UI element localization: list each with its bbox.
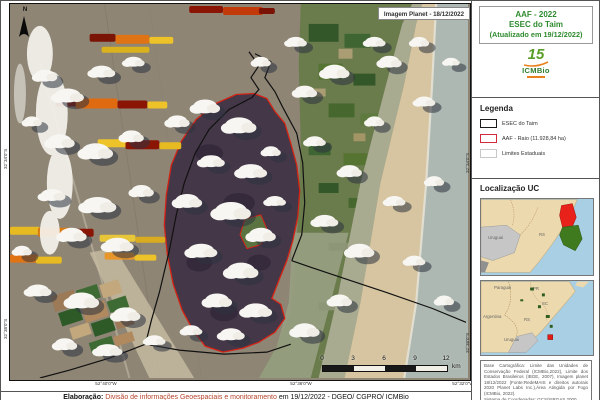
inset2-uruguai-label: Uruguai — [504, 337, 519, 342]
location-inset-rs: Uruguai RS — [480, 198, 594, 276]
scale-tick: 9 — [413, 355, 417, 362]
latitude-label: 32°38'0"S — [3, 319, 8, 339]
map-title: AAF - 2022 ESEC do Taim (Atualizado em 1… — [479, 6, 593, 44]
credits-text: Base Cartográfica: Limite das Unidades d… — [484, 363, 588, 397]
satellite-map-canvas: N Imagem Planet - 18/12/2022 0 3 6 9 12 … — [9, 3, 471, 381]
elaboration-credit: Elaboração: Divisão de informações Geoes… — [1, 391, 471, 400]
icmbio-logo: 15 ICMBio — [472, 47, 600, 78]
image-source-label: Imagem Planet - 18/12/2022 — [378, 7, 470, 20]
legend-item-label: AAF - Raio (11.928,84 ha) — [502, 136, 566, 142]
map-layout-page: N Imagem Planet - 18/12/2022 0 3 6 9 12 … — [0, 0, 600, 400]
legend-item-label: Limites Estaduais — [502, 151, 545, 157]
title-section: AAF - 2022 ESEC do Taim (Atualizado em 1… — [472, 1, 600, 98]
state-limits-swatch — [480, 149, 497, 158]
inset2-pr-label: PR — [533, 286, 539, 291]
aaf-boundary-swatch — [480, 134, 497, 143]
inset2-paraguai-label: Paraguai — [494, 285, 511, 290]
scale-tick: 6 — [382, 355, 386, 362]
side-panel: AAF - 2022 ESEC do Taim (Atualizado em 1… — [471, 1, 600, 400]
logo-name: ICMBio — [472, 67, 600, 75]
scale-unit: km — [452, 363, 461, 370]
scale-bar: 0 3 6 9 12 km — [314, 354, 471, 378]
inset1-uruguai-label: Uruguai — [488, 235, 503, 240]
title-line-2: ESEC do Taim — [481, 20, 591, 30]
latitude-label: 32°34'0"S — [3, 149, 8, 169]
longitude-label: 52°36'0"W — [290, 381, 311, 386]
satellite-imagery — [10, 4, 468, 378]
elaboration-suffix: em 19/12/2022 - DGEO/ CGPRO/ ICMBio — [279, 394, 409, 400]
scale-tick: 12 — [442, 355, 449, 362]
elaboration-team: Divisão de informações Geoespaciais e mo… — [105, 394, 277, 400]
title-line-3: (Atualizado em 19/12/2022) — [481, 30, 591, 40]
legend-item-aaf: AAF - Raio (11.928,84 ha) — [480, 134, 592, 143]
base-cartography-credits: Base Cartográfica: Limite das Unidades d… — [480, 360, 592, 400]
legend-item-limites: Limites Estaduais — [480, 149, 592, 158]
location-section: Localização UC Uruguai RS — [472, 179, 600, 400]
scale-tick: 0 — [320, 355, 324, 362]
scale-tick: 3 — [351, 355, 355, 362]
north-arrow-icon — [16, 13, 32, 39]
inset2-rs-label: RS — [524, 317, 530, 322]
location-heading: Localização UC — [480, 184, 592, 193]
anniversary-15-icon: 15 — [528, 47, 545, 62]
esec-boundary-swatch — [480, 119, 497, 128]
scale-bar-segments — [322, 365, 448, 372]
logo-underline — [527, 76, 545, 78]
inset2-sc-label: SC — [542, 301, 548, 306]
title-line-1: AAF - 2022 — [481, 10, 591, 20]
location-inset-brazil: Paraguai PR SC Argentina RS Uruguai — [480, 280, 594, 356]
latitude-label: 32°34'0"S — [465, 153, 470, 173]
elaboration-label: Elaboração: — [63, 394, 103, 400]
legend-item-esec: ESEC do Taim — [480, 119, 592, 128]
inset2-argentina-label: Argentina — [483, 314, 501, 319]
legend-heading: Legenda — [480, 104, 592, 113]
inset1-rs-label: RS — [539, 232, 545, 237]
coordinate-system-text: Sistema de Coordenadas: GCS/SIRGAS 2000. — [484, 397, 588, 400]
legend-item-label: ESEC do Taim — [502, 121, 538, 127]
longitude-label: 52°40'0"W — [95, 381, 116, 386]
legend: Legenda ESEC do Taim AAF - Raio (11.928,… — [472, 98, 600, 179]
north-arrow: N — [16, 7, 34, 39]
latitude-label: 32°38'0"S — [465, 333, 470, 353]
